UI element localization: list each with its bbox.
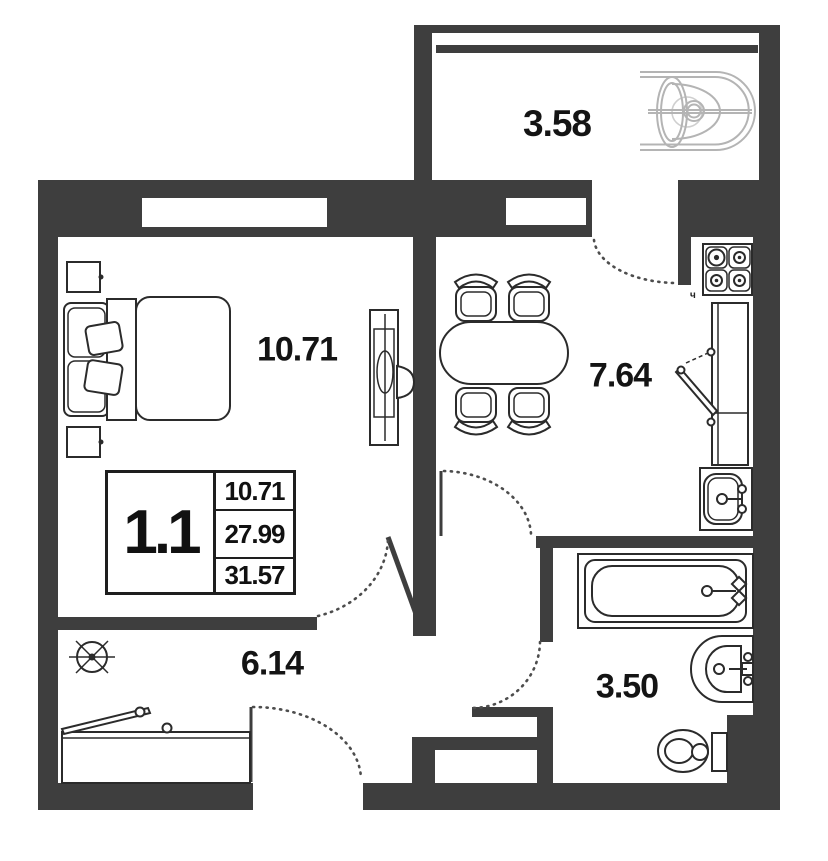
room-area-balcony: 3.58 <box>523 103 591 145</box>
kitchen-door-swing-arc <box>444 471 531 534</box>
toilet <box>658 730 727 772</box>
bedroom-door-swing-arc <box>318 538 388 616</box>
bedroom-door-leaf <box>388 537 416 614</box>
balcony-wall-right <box>759 25 780 180</box>
balcony-wall-left <box>414 25 432 180</box>
bathtub <box>578 554 753 628</box>
wardrobe <box>62 708 250 784</box>
nightstand-bottom <box>67 427 104 457</box>
room-area-bathroom: 3.50 <box>596 668 658 707</box>
bathroom-fixtures <box>578 554 753 772</box>
floor-plan-drawing: ч <box>0 0 828 861</box>
wall-niche-top <box>435 737 537 750</box>
wall-bathroom-upper <box>540 548 553 642</box>
bedroom-furniture <box>64 262 414 457</box>
wall-bathroom-left <box>537 707 553 783</box>
stove: ч <box>690 244 752 301</box>
wall-niche-left <box>412 737 435 783</box>
bathroom-door-swing-arc <box>473 642 540 708</box>
double-bed <box>64 297 230 420</box>
wall-above-kitchen-window <box>506 180 586 198</box>
hallway-items <box>62 641 250 783</box>
window-mullion <box>586 180 592 237</box>
knob-icon <box>99 275 104 280</box>
toilet-tank <box>712 733 727 771</box>
knob-icon <box>163 724 172 733</box>
dining-chair <box>508 275 550 322</box>
legend-apartment-area: 27.99 <box>216 511 293 559</box>
knob-icon <box>99 440 104 445</box>
wall-left <box>38 180 58 810</box>
wall-stub-balcony-door <box>678 237 691 285</box>
chair-icon <box>397 366 414 398</box>
balcony-wall-outer <box>414 25 780 33</box>
dining-table <box>440 322 568 384</box>
room-area-bedroom: 10.71 <box>257 331 337 370</box>
kitchen-sink <box>700 468 752 530</box>
legend-living-area: 10.71 <box>216 473 293 511</box>
pillow <box>84 360 123 396</box>
dining-chair <box>455 388 497 435</box>
pillow <box>85 321 124 355</box>
wall-bottom-left <box>38 783 253 810</box>
dining-chair <box>455 275 497 322</box>
ceiling-light-icon <box>69 641 115 673</box>
bathroom-sink <box>691 636 753 702</box>
entry-door-swing-arc <box>253 707 361 779</box>
nightstand-top <box>67 262 104 292</box>
legend-areas: 10.71 27.99 31.57 <box>216 473 293 592</box>
folding-flap <box>676 368 717 415</box>
wall-top-middle <box>327 180 506 237</box>
wall-kitchen-bottom <box>536 536 753 548</box>
legend-box: 1.1 10.71 27.99 31.57 <box>105 470 296 595</box>
wall-below-kitchen-window <box>506 225 586 237</box>
room-area-hallway: 6.14 <box>241 645 303 684</box>
room-area-kitchen: 7.64 <box>589 357 651 396</box>
floor-plan: ч <box>0 0 828 861</box>
legend-total-area: 31.57 <box>216 559 293 592</box>
desk-with-chair <box>370 310 414 445</box>
dining-chair <box>508 388 550 435</box>
wall-bottom-right <box>363 783 780 810</box>
knob-icon <box>136 708 145 717</box>
unit-number: 1.1 <box>108 473 216 592</box>
wall-above-bedroom-window <box>142 180 327 198</box>
kitchen-counter <box>676 303 748 465</box>
wall-duct-pier <box>727 715 780 783</box>
balcony-chair <box>640 72 755 150</box>
wall-bedroom-bottom <box>58 617 317 630</box>
balcony-glazing-line <box>436 45 758 53</box>
balcony-door-swing-arc <box>594 240 675 283</box>
wall-below-bedroom-window <box>142 227 327 237</box>
stove-mark: ч <box>690 290 696 301</box>
wall-bedroom-kitchen <box>413 237 436 636</box>
